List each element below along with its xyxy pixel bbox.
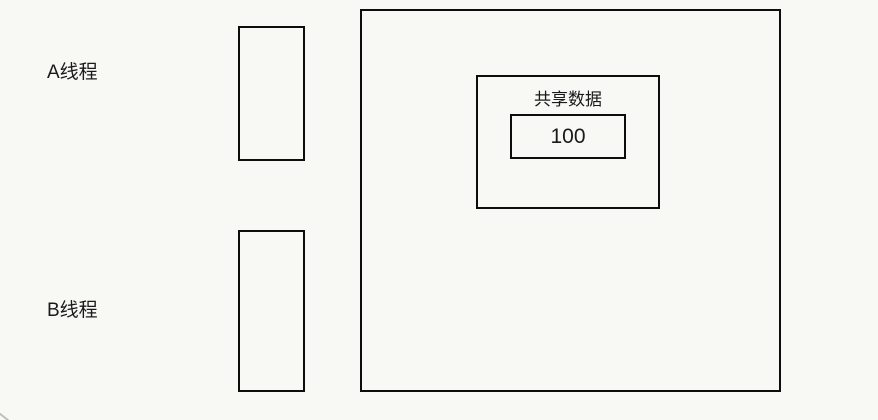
window-corner-artifact <box>0 413 9 420</box>
thread-a-box <box>238 26 305 161</box>
diagram-canvas: A线程 B线程 共享数据 100 <box>0 0 878 420</box>
memory-region-box: 共享数据 100 <box>360 9 781 392</box>
shared-data-label: 共享数据 <box>534 90 602 110</box>
shared-value-text: 100 <box>550 125 585 149</box>
shared-value-box: 100 <box>510 114 626 159</box>
shared-data-box: 共享数据 100 <box>476 75 660 209</box>
thread-a-label: A线程 <box>47 62 98 84</box>
thread-b-box <box>238 230 305 392</box>
thread-b-label: B线程 <box>47 300 98 322</box>
